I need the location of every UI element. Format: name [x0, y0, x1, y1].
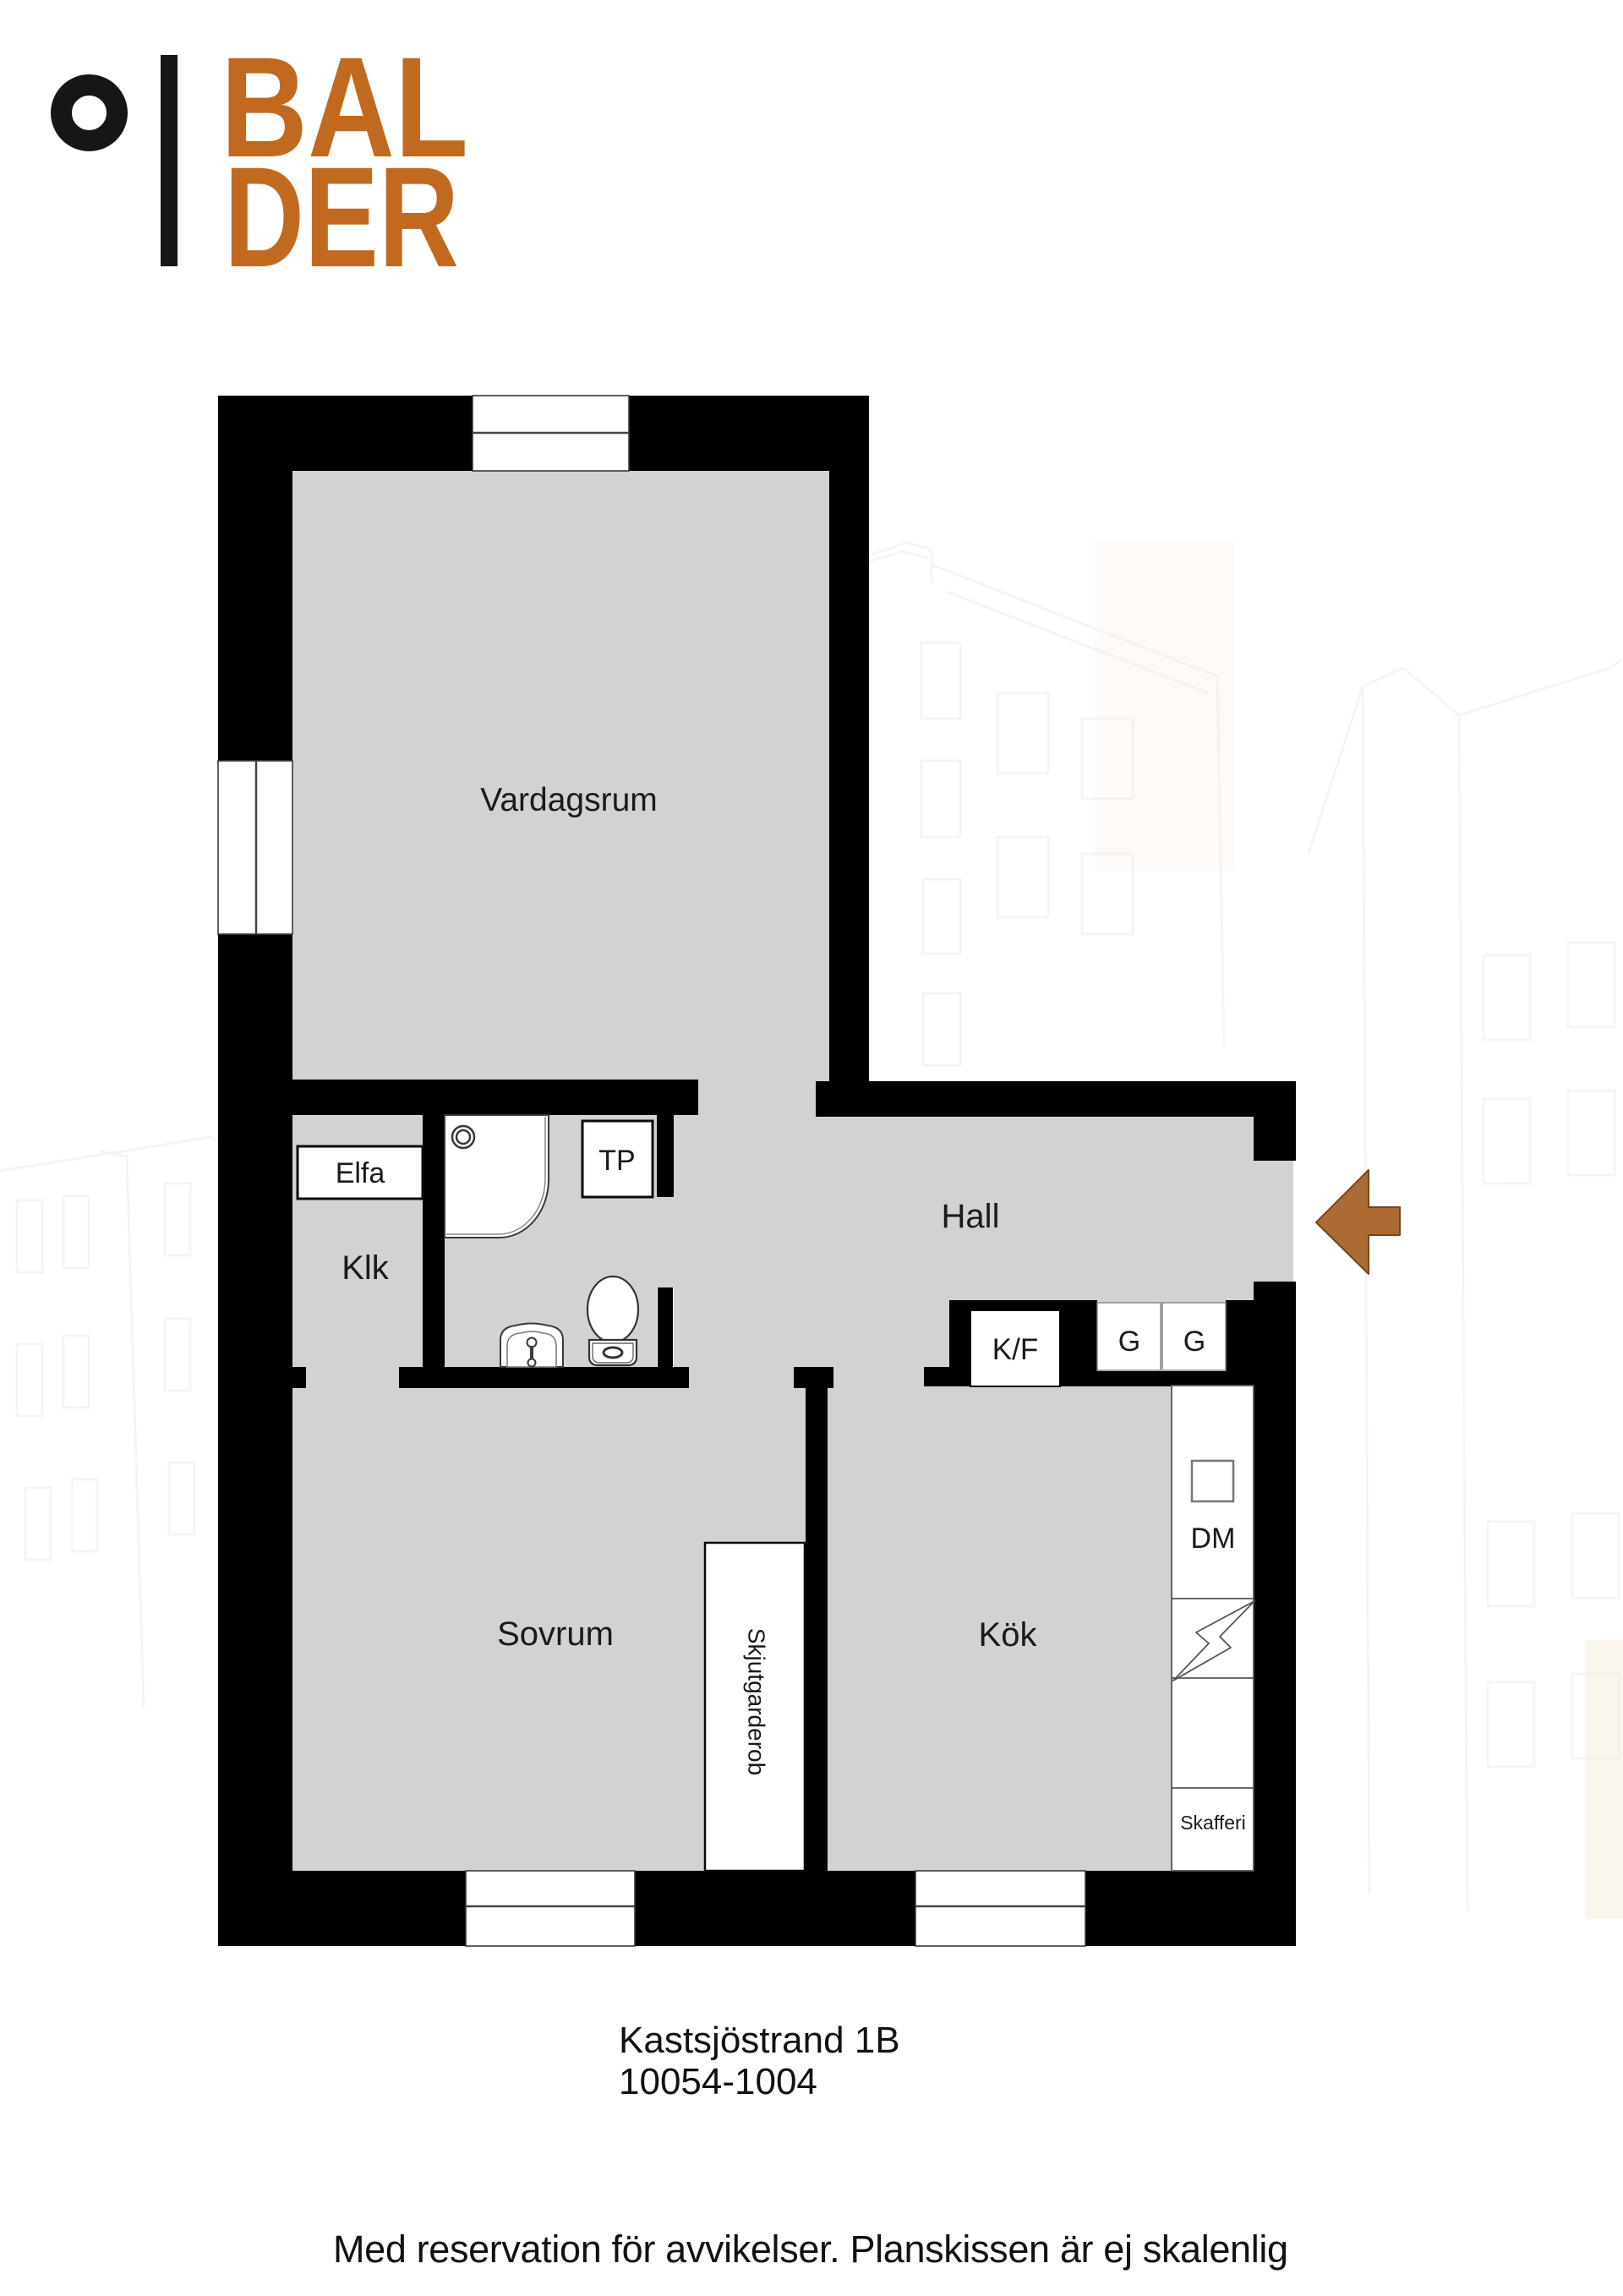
svg-text:Kök: Kök — [979, 1616, 1038, 1654]
svg-text:Skjutgarderob: Skjutgarderob — [744, 1628, 770, 1775]
svg-text:G: G — [1118, 1326, 1140, 1358]
svg-text:Skafferi: Skafferi — [1180, 1812, 1246, 1834]
svg-text:Hall: Hall — [942, 1198, 1000, 1235]
svg-text:DER: DER — [224, 137, 459, 297]
svg-text:TP: TP — [598, 1145, 635, 1177]
svg-text:Vardagsrum: Vardagsrum — [480, 782, 658, 818]
svg-text:K/F: K/F — [992, 1333, 1038, 1366]
svg-text:Kastsjöstrand 1B: Kastsjöstrand 1B — [619, 2020, 900, 2061]
svg-text:G: G — [1183, 1326, 1205, 1358]
svg-text:Elfa: Elfa — [336, 1157, 385, 1189]
svg-text:Klk: Klk — [342, 1249, 390, 1287]
svg-text:Sovrum: Sovrum — [497, 1615, 614, 1653]
svg-text:Med reservation för avvikelser: Med reservation för avvikelser. Planskis… — [333, 2228, 1288, 2271]
svg-text:10054-1004: 10054-1004 — [619, 2061, 817, 2102]
svg-text:DM: DM — [1191, 1522, 1236, 1555]
